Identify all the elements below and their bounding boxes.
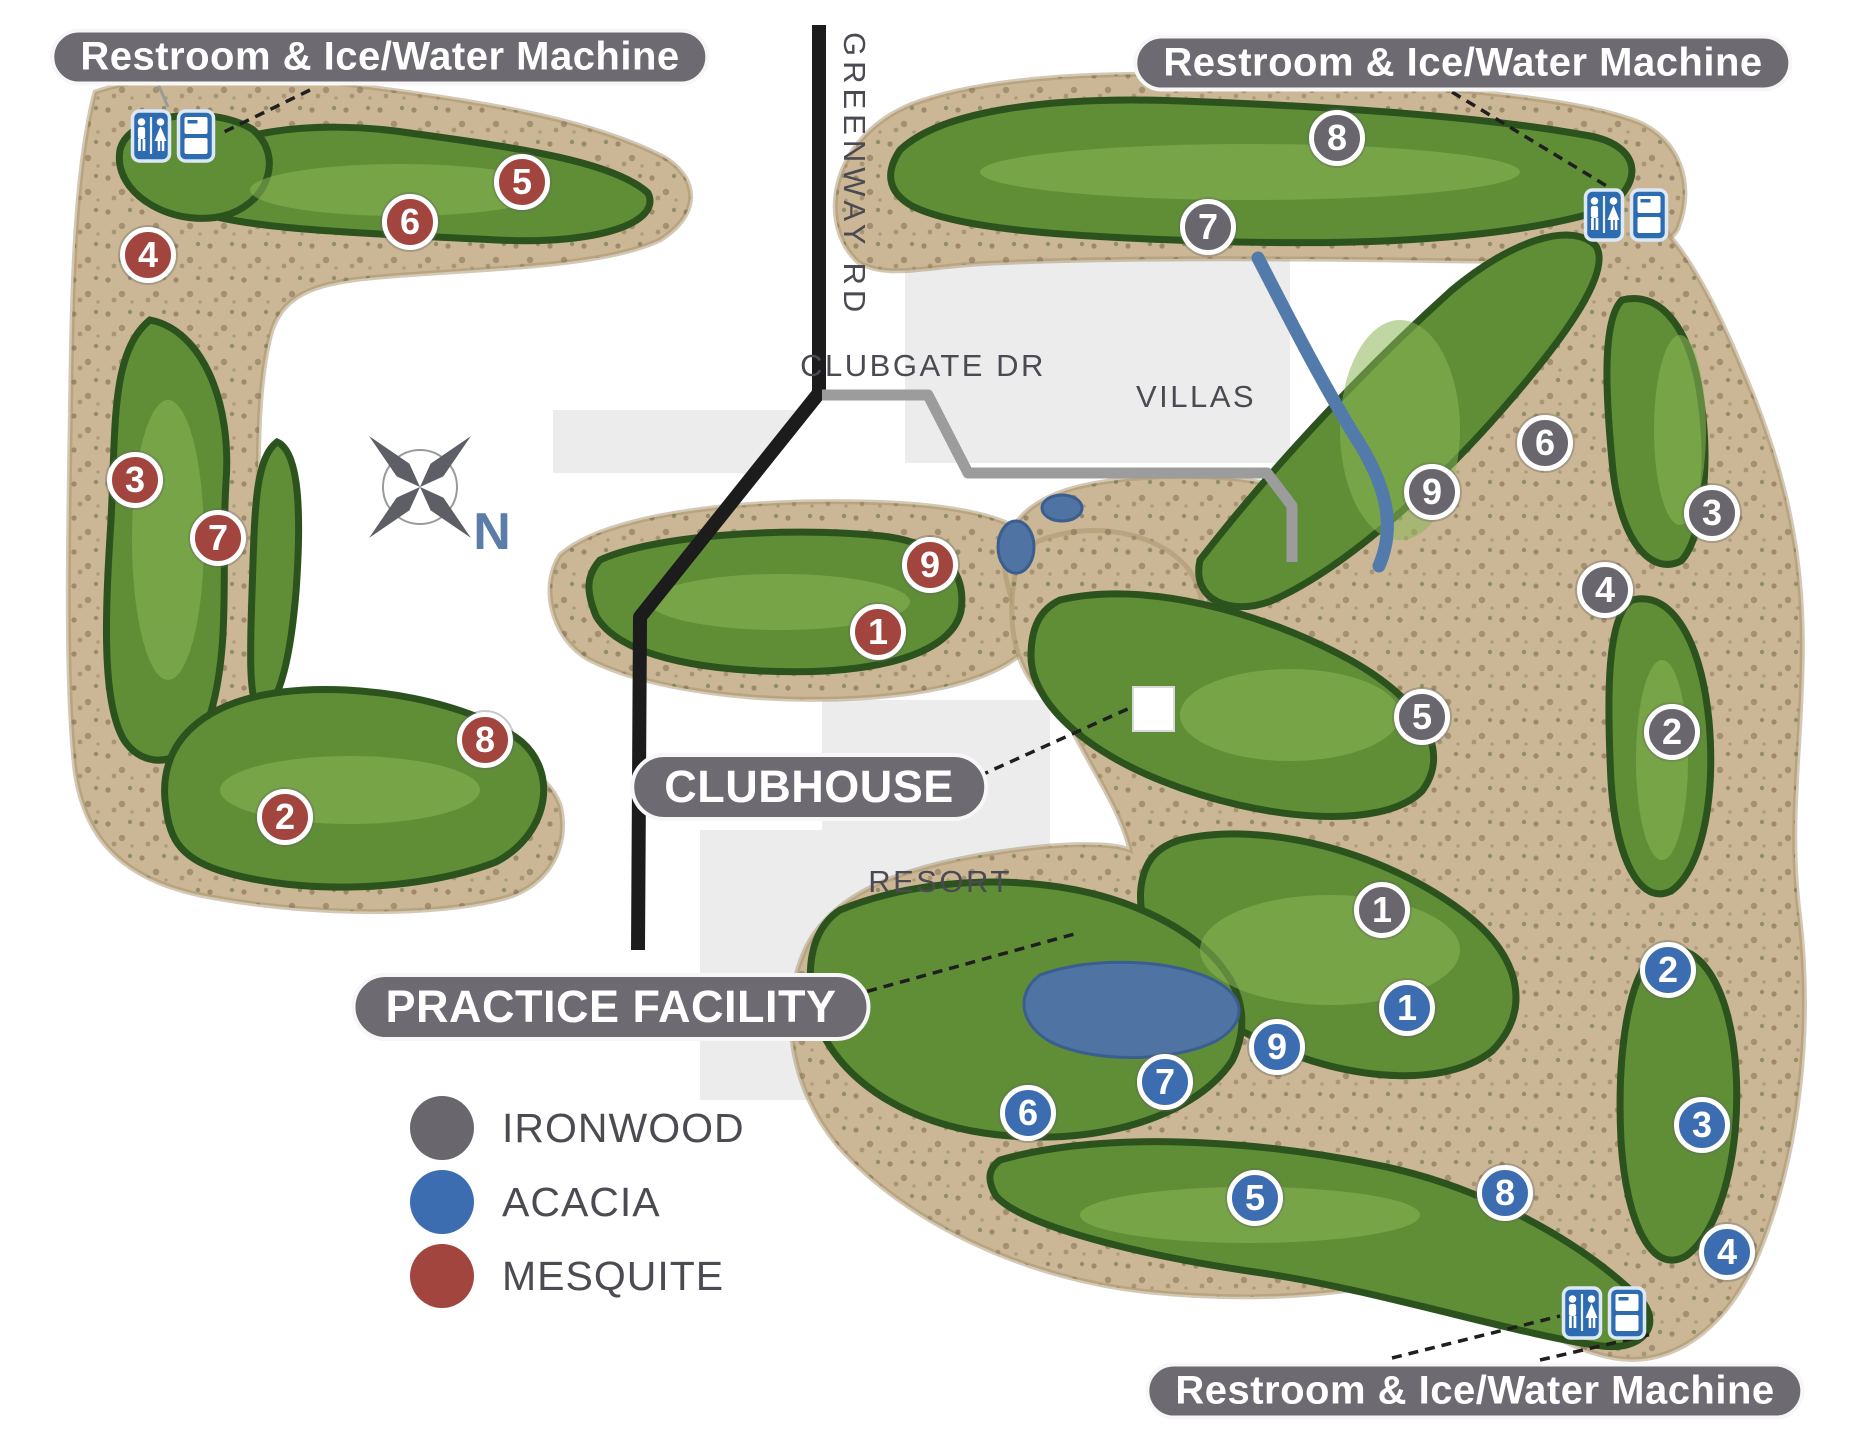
legend: IRONWOODACACIAMESQUITE bbox=[410, 1096, 745, 1308]
hole-marker-mesquite-3: 3 bbox=[107, 452, 163, 508]
legend-item-ironwood: IRONWOOD bbox=[410, 1096, 745, 1160]
hole-marker-mesquite-9: 9 bbox=[902, 537, 958, 593]
legend-swatch-mesquite bbox=[410, 1244, 474, 1308]
pond bbox=[1042, 495, 1082, 521]
hole-marker-ironwood-6: 6 bbox=[1517, 415, 1573, 471]
greenway-rd-label: GREENWAY RD bbox=[836, 32, 872, 317]
restroom-icon bbox=[1562, 1286, 1603, 1340]
hole-marker-ironwood-4: 4 bbox=[1577, 562, 1633, 618]
restroom-station-3 bbox=[1562, 1286, 1647, 1340]
ice-water-machine-icon bbox=[177, 109, 216, 163]
restroom-label-top-left: Restroom & Ice/Water Machine bbox=[50, 29, 709, 86]
clubhouse-label: CLUBHOUSE bbox=[630, 753, 988, 821]
hole-marker-acacia-5: 5 bbox=[1227, 1170, 1283, 1226]
restroom-icon bbox=[1584, 188, 1625, 242]
hole-marker-ironwood-2: 2 bbox=[1644, 704, 1700, 760]
hole-marker-ironwood-3: 3 bbox=[1684, 485, 1740, 541]
hole-marker-mesquite-7: 7 bbox=[190, 510, 246, 566]
hole-marker-acacia-2: 2 bbox=[1640, 942, 1696, 998]
hole-marker-mesquite-8: 8 bbox=[457, 712, 513, 768]
legend-swatch-acacia bbox=[410, 1170, 474, 1234]
ice-water-machine-icon bbox=[1630, 188, 1669, 242]
hole-marker-acacia-8: 8 bbox=[1477, 1165, 1533, 1221]
hole-marker-acacia-9: 9 bbox=[1249, 1019, 1305, 1075]
hole-marker-acacia-1: 1 bbox=[1379, 980, 1435, 1036]
legend-label-acacia: ACACIA bbox=[502, 1179, 661, 1226]
compass-rose-icon bbox=[363, 430, 478, 545]
restroom-icon bbox=[131, 109, 172, 163]
hole-marker-ironwood-5: 5 bbox=[1394, 689, 1450, 745]
practice-lake bbox=[1024, 962, 1239, 1057]
restroom-station-2 bbox=[1584, 188, 1669, 242]
legend-item-acacia: ACACIA bbox=[410, 1170, 745, 1234]
villas-label: VILLAS bbox=[1136, 379, 1256, 415]
hole-marker-mesquite-1: 1 bbox=[850, 604, 906, 660]
clubhouse-building-marker bbox=[1133, 687, 1174, 731]
hole-marker-mesquite-2: 2 bbox=[257, 789, 313, 845]
hole-marker-mesquite-5: 5 bbox=[494, 154, 550, 210]
clubgate-dr-label: CLUBGATE DR bbox=[800, 348, 1046, 384]
legend-label-mesquite: MESQUITE bbox=[502, 1253, 724, 1300]
hole-marker-mesquite-6: 6 bbox=[382, 194, 438, 250]
restroom-label-top-right: Restroom & Ice/Water Machine bbox=[1133, 35, 1792, 92]
hole-marker-ironwood-8: 8 bbox=[1309, 110, 1365, 166]
restroom-label-bottom-right: Restroom & Ice/Water Machine bbox=[1145, 1363, 1804, 1420]
golf-course-map: Restroom & Ice/Water Machine Restroom & … bbox=[0, 0, 1876, 1432]
hole-marker-acacia-3: 3 bbox=[1674, 1097, 1730, 1153]
hole-marker-ironwood-7: 7 bbox=[1180, 199, 1236, 255]
hole-marker-acacia-4: 4 bbox=[1699, 1224, 1755, 1280]
pond bbox=[998, 521, 1034, 573]
resort-label: RESORT bbox=[868, 864, 1012, 900]
hole-marker-mesquite-4: 4 bbox=[120, 227, 176, 283]
hole-marker-ironwood-9: 9 bbox=[1404, 464, 1460, 520]
hole-marker-acacia-6: 6 bbox=[1000, 1085, 1056, 1141]
legend-item-mesquite: MESQUITE bbox=[410, 1244, 745, 1308]
ice-water-machine-icon bbox=[1608, 1286, 1647, 1340]
compass-north-label: N bbox=[473, 502, 511, 562]
hole-marker-acacia-7: 7 bbox=[1137, 1054, 1193, 1110]
practice-facility-label: PRACTICE FACILITY bbox=[351, 973, 870, 1041]
legend-swatch-ironwood bbox=[410, 1096, 474, 1160]
hole-marker-ironwood-1: 1 bbox=[1354, 882, 1410, 938]
legend-label-ironwood: IRONWOOD bbox=[502, 1105, 745, 1152]
restroom-station-1 bbox=[131, 109, 216, 163]
